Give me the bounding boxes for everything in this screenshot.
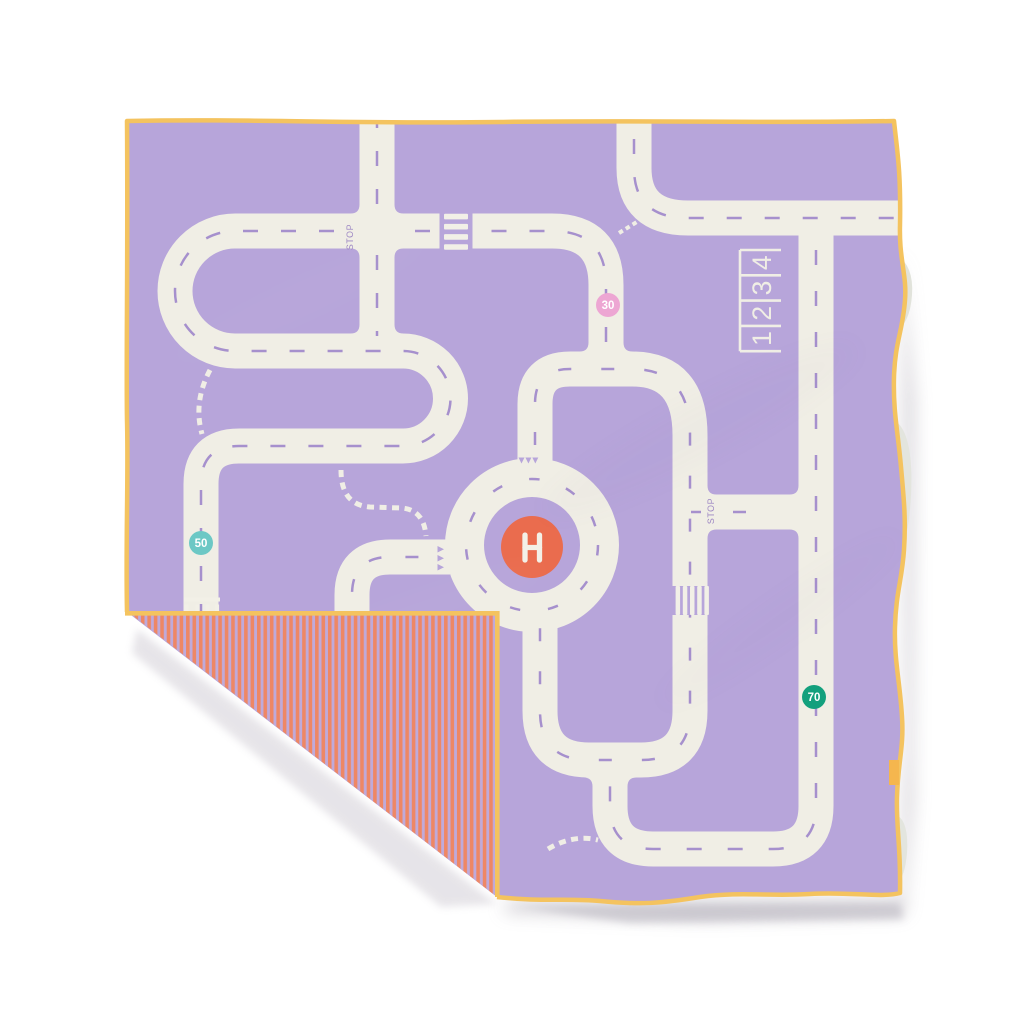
svg-text:50: 50 xyxy=(195,538,208,550)
svg-text:70: 70 xyxy=(808,692,821,704)
svg-text:3: 3 xyxy=(747,281,777,296)
svg-text:4: 4 xyxy=(747,255,777,270)
svg-text:STOP: STOP xyxy=(706,498,716,524)
svg-text:30: 30 xyxy=(602,300,615,312)
svg-text:2: 2 xyxy=(747,306,777,321)
svg-text:1: 1 xyxy=(747,331,777,346)
svg-text:STOP: STOP xyxy=(345,224,355,250)
